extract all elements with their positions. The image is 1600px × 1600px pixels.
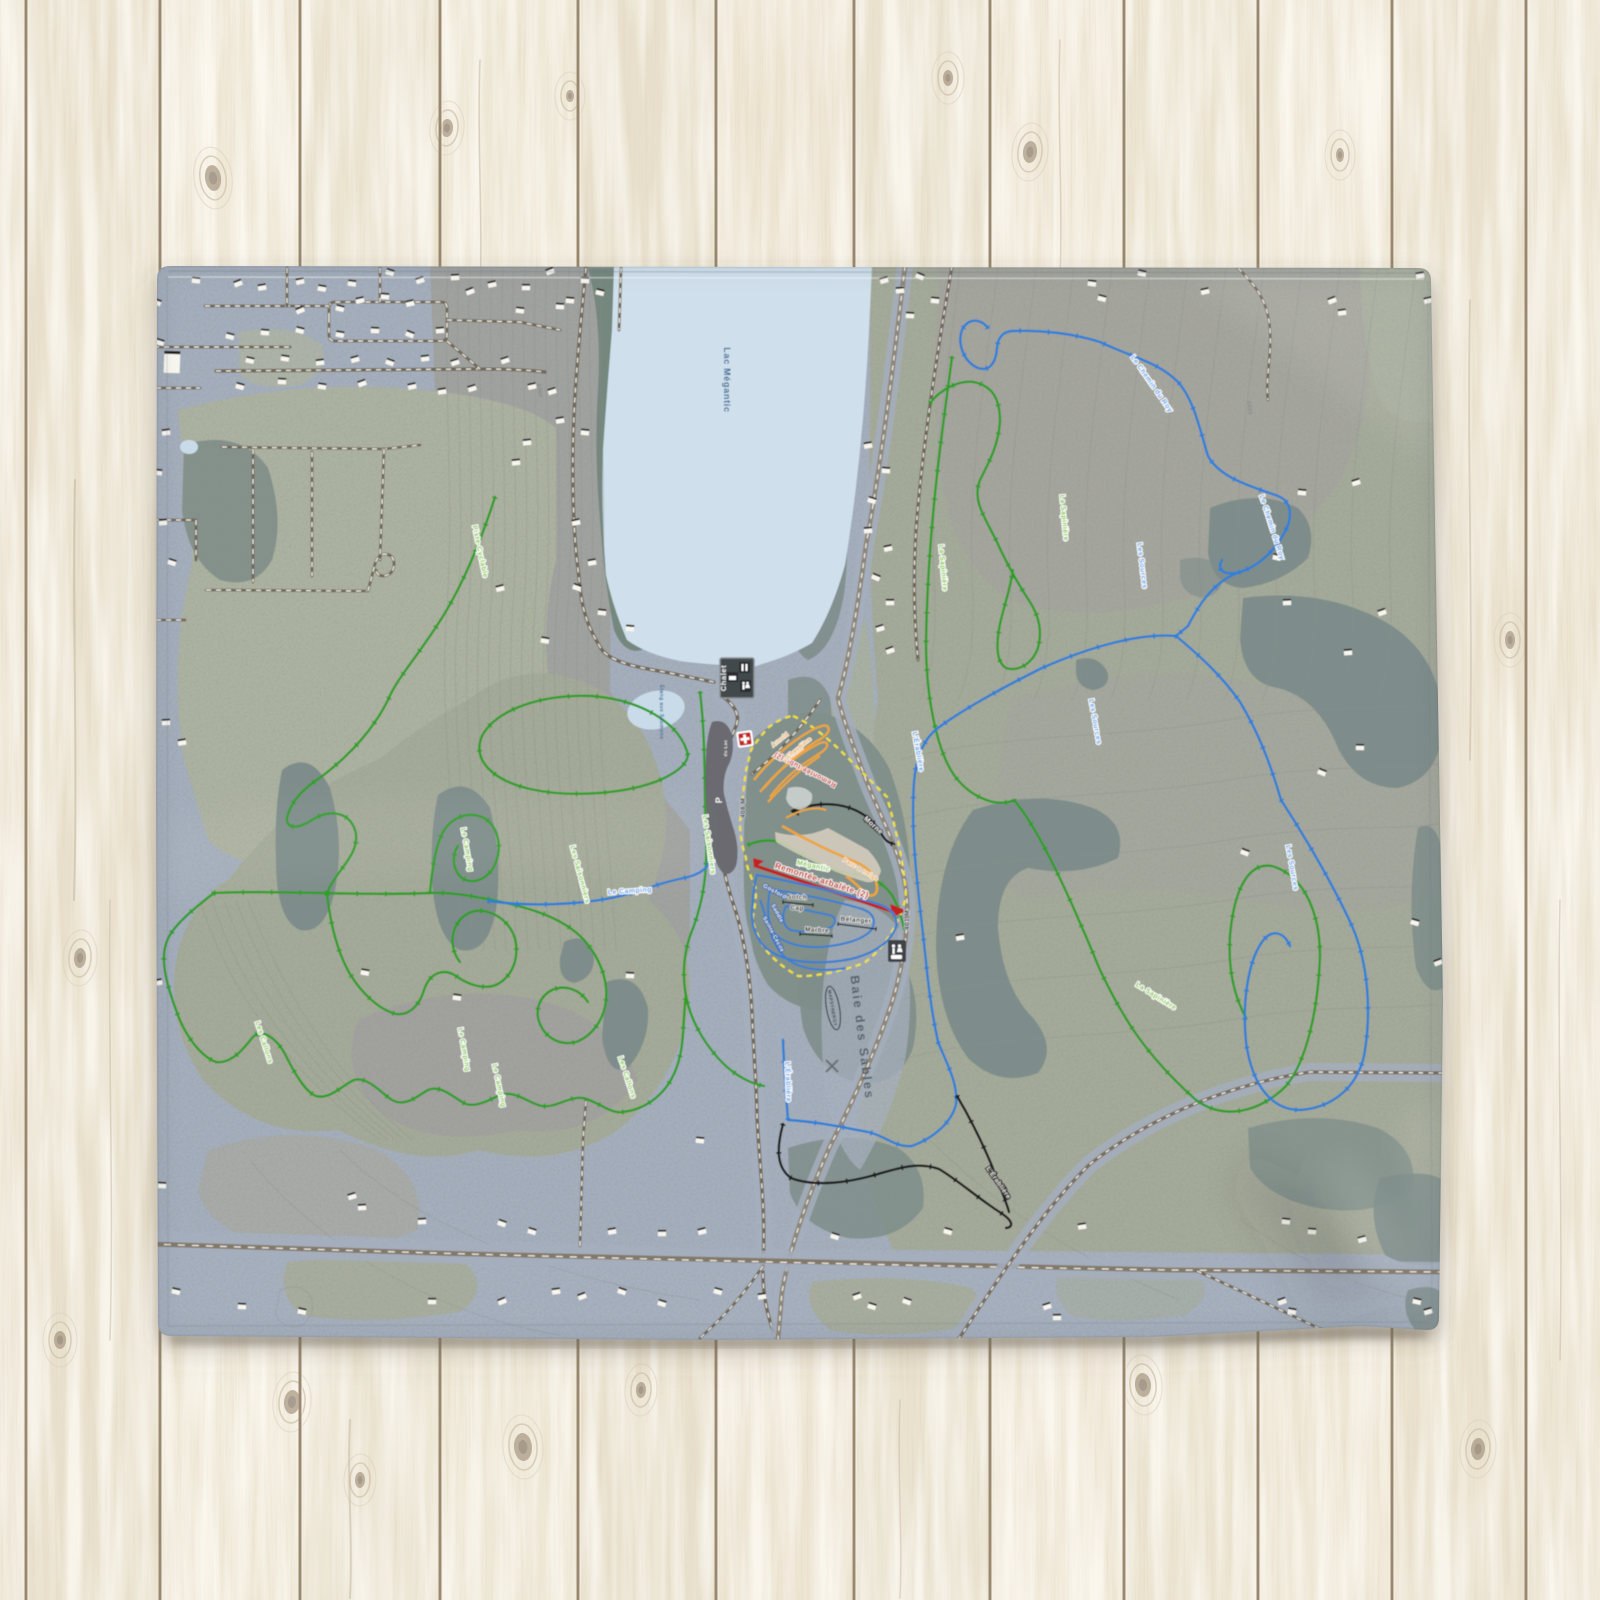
svg-text:Cap: Cap [790, 905, 804, 913]
svg-text:Étang aux Saumons: Étang aux Saumons [658, 685, 666, 740]
svg-text:Chalet: Chalet [719, 665, 728, 692]
svg-text:0420: 0420 [1245, 401, 1252, 415]
svg-text:408 M: 408 M [740, 798, 747, 818]
svg-text:P: P [714, 797, 724, 803]
svg-text:401 M: 401 M [904, 910, 911, 930]
svg-text:Marbre: Marbre [805, 926, 829, 934]
svg-text:Lac Mégantic: Lac Mégantic [722, 347, 732, 412]
svg-text:du Lac: du Lac [723, 739, 728, 756]
svg-text:Sotch: Sotch [787, 893, 807, 901]
